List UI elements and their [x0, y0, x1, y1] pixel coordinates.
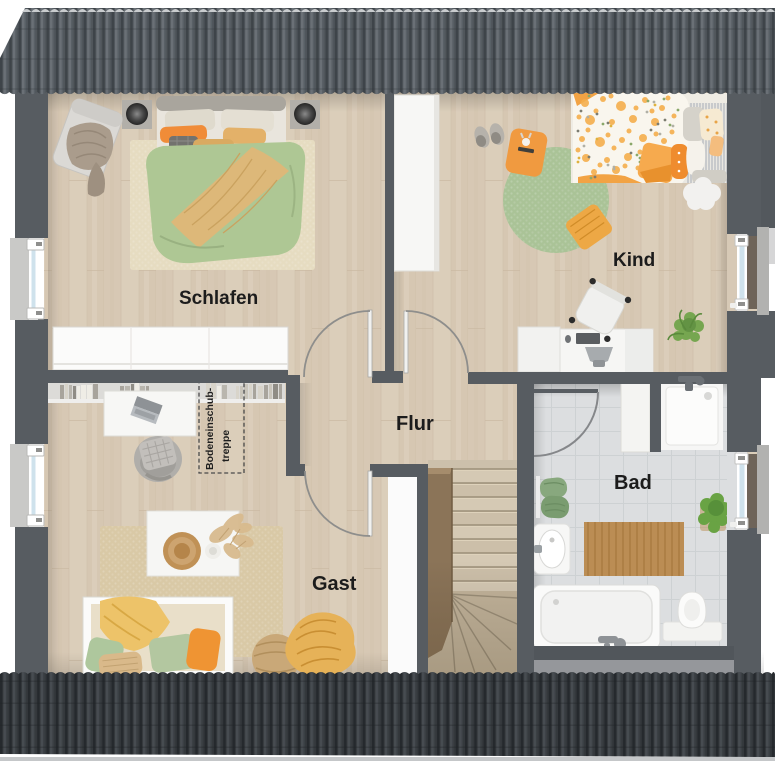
svg-text:Schlafen: Schlafen: [179, 288, 258, 309]
svg-text:Gast: Gast: [312, 573, 357, 595]
svg-text:treppe: treppe: [220, 430, 232, 462]
svg-text:Kind: Kind: [613, 250, 655, 271]
svg-text:Bodeneinschub-: Bodeneinschub-: [204, 387, 216, 470]
svg-text:Flur: Flur: [396, 413, 434, 435]
svg-text:Bad: Bad: [614, 472, 652, 494]
